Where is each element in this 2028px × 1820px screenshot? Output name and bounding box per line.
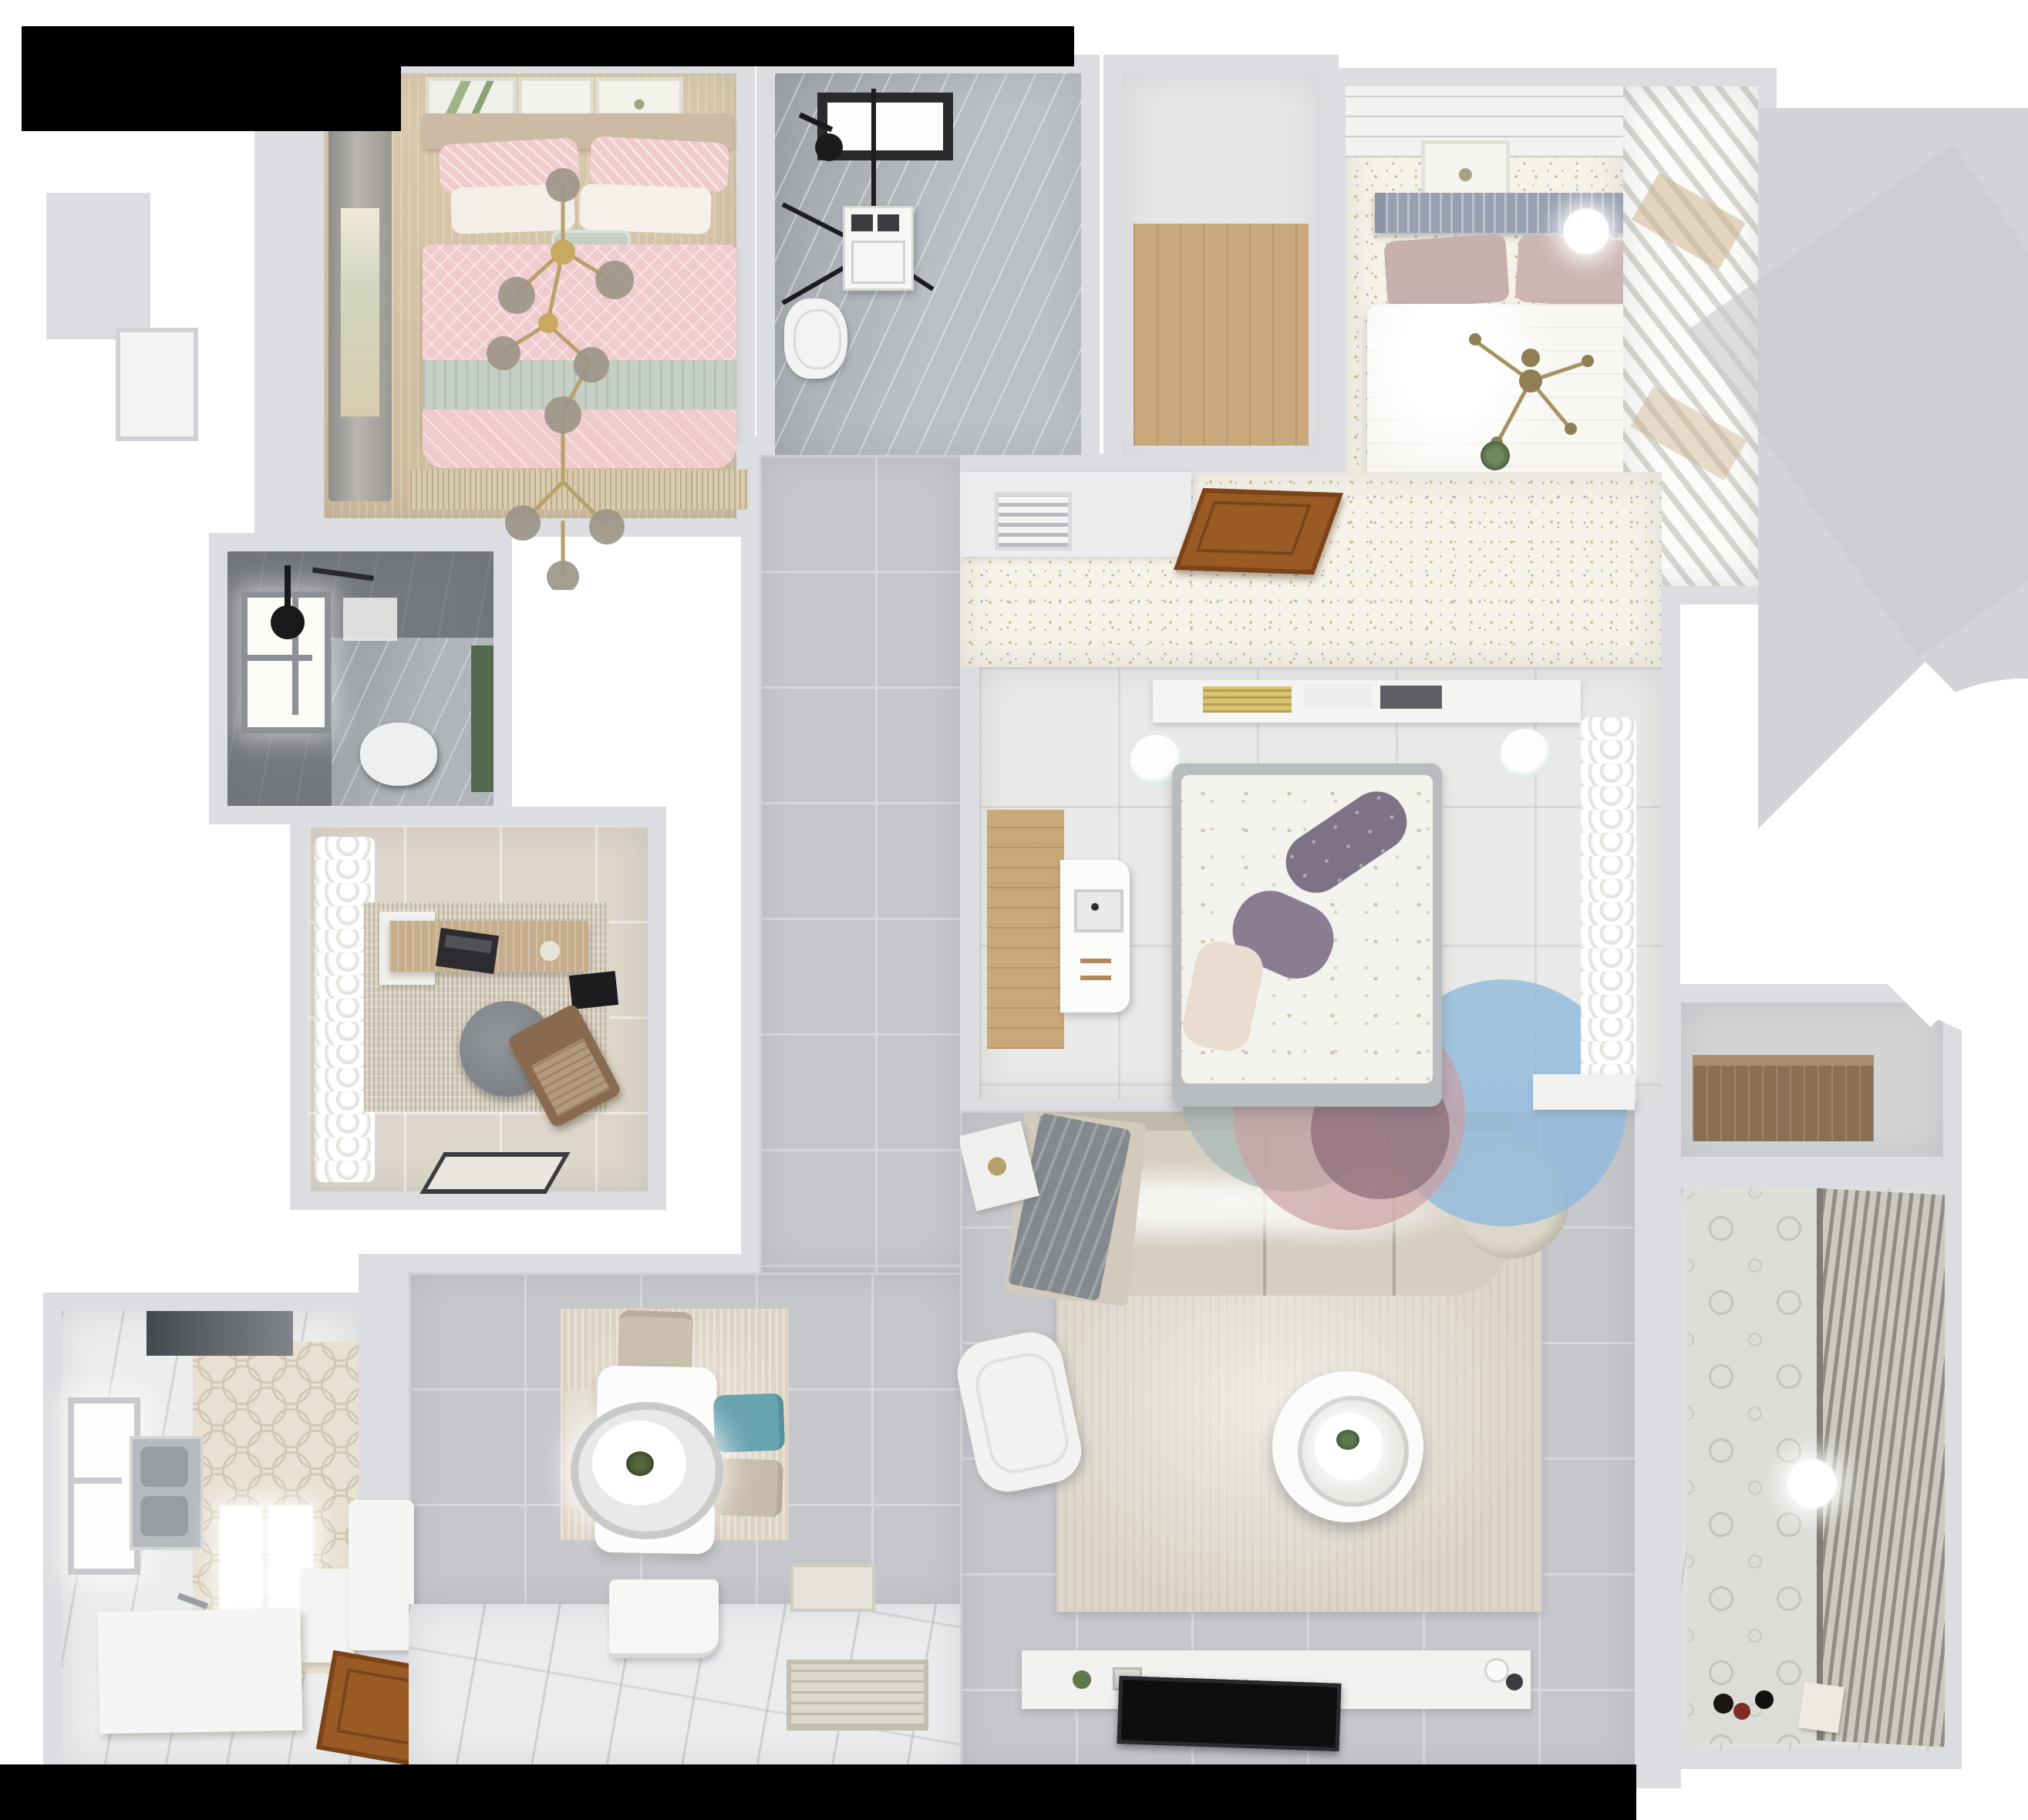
wall-art-master <box>1421 140 1510 199</box>
backdrop-black-bottom-bar <box>0 1764 1636 1820</box>
dining-chair-teal <box>713 1393 786 1452</box>
room-kitchen <box>62 1311 359 1766</box>
room-storage <box>1122 73 1320 455</box>
armchair-seat-line <box>971 1348 1073 1478</box>
stool-right <box>1501 729 1550 778</box>
double-sink <box>130 1436 204 1550</box>
shower-rail <box>312 567 374 581</box>
shower-head <box>815 133 843 161</box>
room-utility <box>1681 1003 1943 1157</box>
exterior-door-left <box>116 328 198 441</box>
backdrop-black-top-left-block <box>22 26 401 131</box>
console-bottle-1 <box>1484 1658 1509 1683</box>
master-headboard <box>1375 193 1654 233</box>
doormat-small <box>790 1564 875 1612</box>
desk-drawer-handles <box>1080 959 1111 963</box>
utility-wood-counter <box>1693 1055 1874 1141</box>
laptop-screen <box>444 935 492 953</box>
corridor-plant <box>1481 441 1510 470</box>
side-table-decor-gold <box>986 1155 1009 1178</box>
toilet-shower-room <box>360 723 437 786</box>
room-bathroom-shower <box>227 551 494 806</box>
toy-black-1 <box>1713 1694 1733 1714</box>
room-dining <box>409 1272 960 1604</box>
center-bedroom-curtains <box>1581 717 1636 1107</box>
closet-wood-shelf <box>1632 173 1746 270</box>
pillow-mauve-left <box>1383 234 1510 310</box>
white-desk <box>1060 860 1130 1013</box>
window-mullion-h <box>248 655 312 661</box>
kitchen-window-bar <box>74 1478 122 1484</box>
ac-vent-grille <box>995 492 1072 551</box>
console-bottle-2 <box>1506 1673 1523 1690</box>
window-light <box>341 208 379 416</box>
storage-wood-floor <box>1134 224 1309 446</box>
pendant-plant-centerpiece <box>626 1451 654 1476</box>
study-doormat <box>419 1152 570 1194</box>
books-yellow <box>1203 686 1292 713</box>
balcony-ball-lamp <box>1787 1459 1837 1508</box>
wall-exterior-left-chunk <box>46 193 150 339</box>
lounge-chair-cushion <box>531 1039 610 1117</box>
counter-l-bottom <box>98 1609 303 1734</box>
imac-logo-dot <box>1091 903 1099 911</box>
toy-black-2 <box>1755 1690 1774 1709</box>
washer-panel-left <box>851 214 873 231</box>
range-hood <box>147 1311 293 1356</box>
toilet-seat-line <box>793 309 841 369</box>
console-plant <box>1073 1670 1091 1689</box>
washer-panel-right <box>878 214 899 231</box>
shower-shelf-item <box>343 598 397 641</box>
room-hallway <box>760 455 960 1272</box>
washer-drum-lid <box>851 241 905 284</box>
toilet-main <box>784 298 847 379</box>
wall-exterior-left-of-bedroom <box>254 93 324 540</box>
sink-basin-bottom <box>140 1496 188 1536</box>
headboard-shelf <box>1153 680 1581 723</box>
room-balcony <box>1681 1188 1943 1751</box>
flat-tv <box>1117 1676 1342 1751</box>
closet-wood-strip <box>987 810 1064 1049</box>
tall-white-cabinet <box>349 1500 414 1650</box>
backdrop-white-right-margin <box>1974 1041 2028 1820</box>
books-dark <box>1380 686 1442 709</box>
dining-chair-right <box>713 1458 784 1517</box>
sink-basin-top <box>140 1447 188 1487</box>
doormat-patterned <box>787 1660 928 1731</box>
counter-block-right <box>302 1569 354 1663</box>
tablet-black <box>569 971 618 1009</box>
closet-wood-shelf-2 <box>1630 386 1747 480</box>
balcony-venetian-blinds <box>1817 1188 1945 1748</box>
books-white <box>1303 684 1373 709</box>
gold-branch-chandelier <box>432 158 694 590</box>
room-bedroom-secondary <box>324 73 736 518</box>
green-cabinet <box>471 645 494 792</box>
room-study <box>308 825 648 1191</box>
open-wooden-door <box>1174 488 1343 575</box>
shower-stem <box>285 565 291 610</box>
washing-machine <box>843 206 914 291</box>
room-bathroom-main <box>775 73 1081 455</box>
bench-white <box>1533 1074 1635 1110</box>
desk-drawer-handles-2 <box>1080 976 1111 980</box>
floorplan-stage <box>0 0 2028 1820</box>
room-bedroom-corridor <box>960 472 1662 667</box>
kitchen-light-panel-left <box>220 1505 262 1623</box>
entry-white-door <box>609 1579 719 1658</box>
laptop-on-desk <box>436 928 499 974</box>
balcony-paper-stack <box>1798 1682 1844 1734</box>
wall-filler-living-balcony <box>1635 1092 1681 1788</box>
coffee-table-plant <box>1336 1430 1359 1450</box>
imac-display <box>1074 889 1123 932</box>
toy-red <box>1733 1703 1750 1720</box>
gold-cross-chandelier <box>1454 318 1608 457</box>
ceiling-shower-head <box>271 605 305 639</box>
desk-plant <box>540 941 560 961</box>
ceiling-light-master <box>1563 208 1609 254</box>
door-panel-line <box>1195 501 1311 555</box>
